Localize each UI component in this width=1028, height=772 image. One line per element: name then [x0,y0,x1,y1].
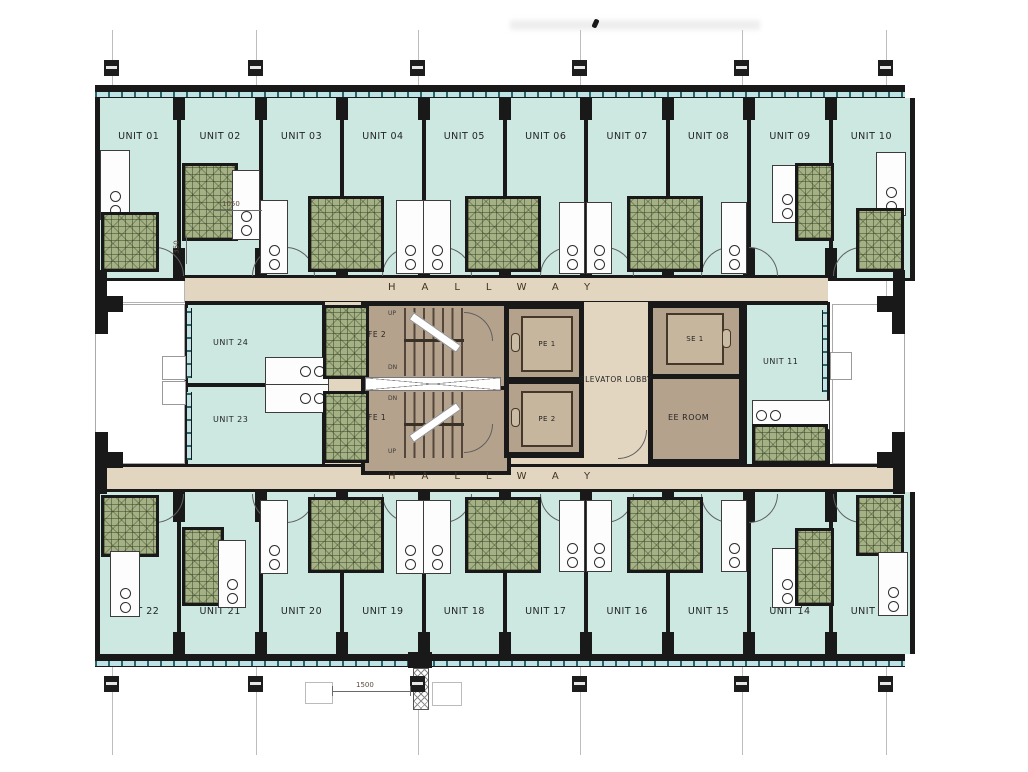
column-symbol [878,676,893,692]
column [95,458,107,494]
kitchen-counter [396,500,424,574]
dimension-text: 1500 [356,681,374,689]
unit-label: UNIT 11 [763,357,798,366]
unit-label: UNIT 04 [344,131,421,142]
stove-burner [782,593,793,604]
window-strip-west [186,392,192,460]
column-symbol [572,676,587,692]
bathroom-pod [465,497,541,573]
unit-label: UNIT 08 [670,131,747,142]
kitchen-counter [218,540,246,608]
stove-burner [432,559,443,570]
elevator-car: PE 1 [521,316,573,372]
kitchen-counter [423,500,451,574]
stove-burner [432,245,443,256]
elevator-car: SE 1 [666,313,724,365]
kitchen-counter [586,500,612,572]
stove-burner [567,245,578,256]
ac-ledge [162,356,186,380]
stair-label: FE 1 [368,413,386,422]
stove-burner [110,191,121,202]
bathroom-pod [101,212,159,272]
bathroom-pod [323,305,369,379]
elevator-lobby-label: ELEVATOR LOBBY [566,375,666,384]
bathroom-pod [856,208,904,272]
shaft-vent [365,377,501,391]
down-label: DN [388,395,397,402]
column-symbol [572,60,587,76]
bathroom-pod [308,196,384,272]
stove-burner [241,225,252,236]
column-symbol [410,60,425,76]
stove-burner [729,245,740,256]
stove-burner [432,545,443,556]
stove-burner [567,543,578,554]
unit-label: UNIT 17 [507,606,584,617]
stove-burner [756,410,767,421]
column-symbol [410,676,425,692]
elevator-car: PE 2 [521,391,573,447]
stove-burner [269,245,280,256]
stove-burner [269,559,280,570]
unit-label: UNIT 24 [213,338,248,347]
dimension-line [332,691,410,692]
stove-burner [594,245,605,256]
window-strip-north [95,91,905,98]
kitchen-counter [559,500,585,572]
bathroom-pod [752,424,828,464]
stove-burner [888,601,899,612]
dimension-tick [410,686,411,696]
stove-burner [120,602,131,613]
stove-burner [120,588,131,599]
bathroom-pod [308,497,384,573]
stove-burner [227,579,238,590]
stove-burner [729,557,740,568]
stove-burner [729,543,740,554]
unit-label: UNIT 19 [344,606,421,617]
unit-label: UNIT 06 [507,131,584,142]
kitchen-counter [586,202,612,274]
unit-label: UNIT 07 [588,131,665,142]
stove-burner [594,557,605,568]
hallway-label: HALLWAY [388,471,616,482]
dimension-text: 1050 [222,200,240,208]
bathroom-pod [856,495,904,556]
stove-burner [269,259,280,270]
kitchen-counter [559,202,585,274]
unit-label: UNIT 01 [100,131,177,142]
stove-burner [405,245,416,256]
bathroom-pod [323,391,369,463]
elevator-door-jamb [722,329,731,348]
stove-burner [886,187,897,198]
kitchen-counter [260,500,288,574]
column [893,458,905,494]
column [893,270,905,306]
window-strip-south [95,660,905,667]
column-symbol [104,676,119,692]
stove-burner [300,393,311,404]
stove-burner [782,194,793,205]
stove-burner [241,211,252,222]
stove-burner [594,259,605,270]
stove-burner [594,543,605,554]
kitchen-counter [878,552,908,616]
down-label: DN [388,364,397,371]
elevator-door-jamb [511,408,520,427]
column [408,652,432,668]
column-symbol [248,676,263,692]
window-strip-west [186,308,192,378]
unit-label: UNIT 18 [426,606,503,617]
ac-ledge [162,381,186,405]
elevator-door-jamb [511,333,520,352]
bathroom-pod [465,196,541,272]
faded-title-smudge [510,20,760,30]
unit-label: UNIT 10 [833,131,910,142]
stair-label: FE 2 [368,330,386,339]
kitchen-counter [721,202,747,274]
unit-label: UNIT 05 [426,131,503,142]
bathroom-pod [627,196,703,272]
stove-burner [405,559,416,570]
stove-burner [269,545,280,556]
column [95,270,107,306]
stove-burner [782,208,793,219]
bathroom-pod [795,528,834,606]
kitchen-counter [423,200,451,274]
column-symbol [248,60,263,76]
stove-burner [432,259,443,270]
unit-label: UNIT 16 [588,606,665,617]
kitchen-counter [876,152,906,216]
dimension-tick [332,686,333,696]
stove-burner [888,587,899,598]
stove-burner [567,557,578,568]
kitchen-counter [110,551,140,617]
stove-burner [405,545,416,556]
column-symbol [104,60,119,76]
kitchen-counter [721,500,747,572]
unit-label: UNIT 02 [181,131,258,142]
stove-burner [300,366,311,377]
hallway-label: HALLWAY [388,282,616,293]
dimension-text: 350 [173,240,181,253]
bathroom-pod [627,497,703,573]
up-label: UP [388,310,396,317]
ee-room-label: EE ROOM [668,413,709,422]
unit-label: UNIT 03 [263,131,340,142]
stove-burner [567,259,578,270]
stove-burner [227,593,238,604]
dimension-line [186,236,187,264]
kitchen-counter [396,200,424,274]
column-symbol [734,60,749,76]
stove-burner [770,410,781,421]
kitchen-counter [260,200,288,274]
kitchen-counter [100,150,130,220]
kitchen-counter [265,384,329,413]
elevator-label: PE 2 [538,415,555,423]
unit-label: UNIT 09 [751,131,828,142]
unit-label: UNIT 15 [670,606,747,617]
ac-ledge [432,682,462,706]
kitchen-counter [265,357,329,386]
bathroom-pod [101,495,159,557]
dimension-line [214,210,262,211]
elevator-label: PE 1 [538,340,555,348]
unit-label: UNIT 23 [213,415,248,424]
elevator-label: SE 1 [686,335,704,343]
stove-burner [782,579,793,590]
bathroom-pod [795,163,834,241]
ac-ledge [830,352,852,380]
window-strip-east [822,310,828,392]
unit-label: UNIT 20 [263,606,340,617]
stove-burner [405,259,416,270]
stove-burner [729,259,740,270]
ac-ledge [305,682,333,704]
floor-plan: UNIT 01 UNIT 02 UNIT 03 UNIT 04 UNIT 05 … [0,0,1028,772]
column-symbol [878,60,893,76]
column-symbol [734,676,749,692]
up-label: UP [388,448,396,455]
